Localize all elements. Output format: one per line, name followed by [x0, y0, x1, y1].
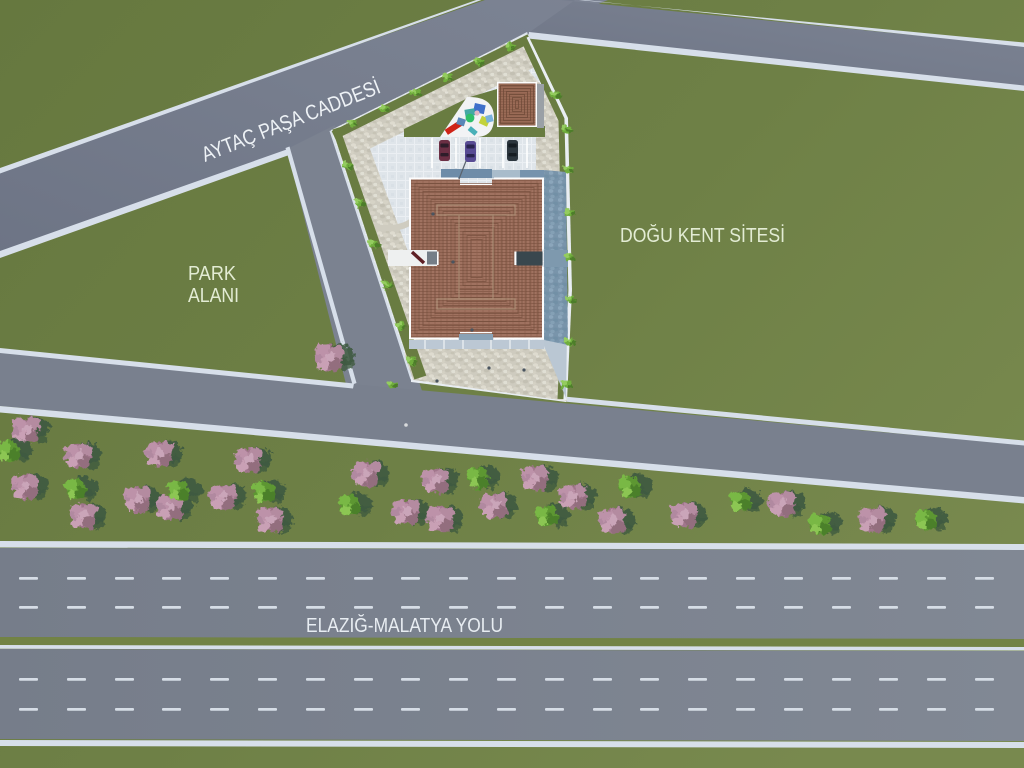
svg-text:ELAZIĞ-MALATYA YOLU: ELAZIĞ-MALATYA YOLU: [306, 614, 503, 637]
svg-text:ALANI: ALANI: [188, 285, 239, 307]
svg-text:PARK: PARK: [188, 263, 237, 285]
svg-text:DOĞU KENT SİTESİ: DOĞU KENT SİTESİ: [620, 224, 785, 247]
